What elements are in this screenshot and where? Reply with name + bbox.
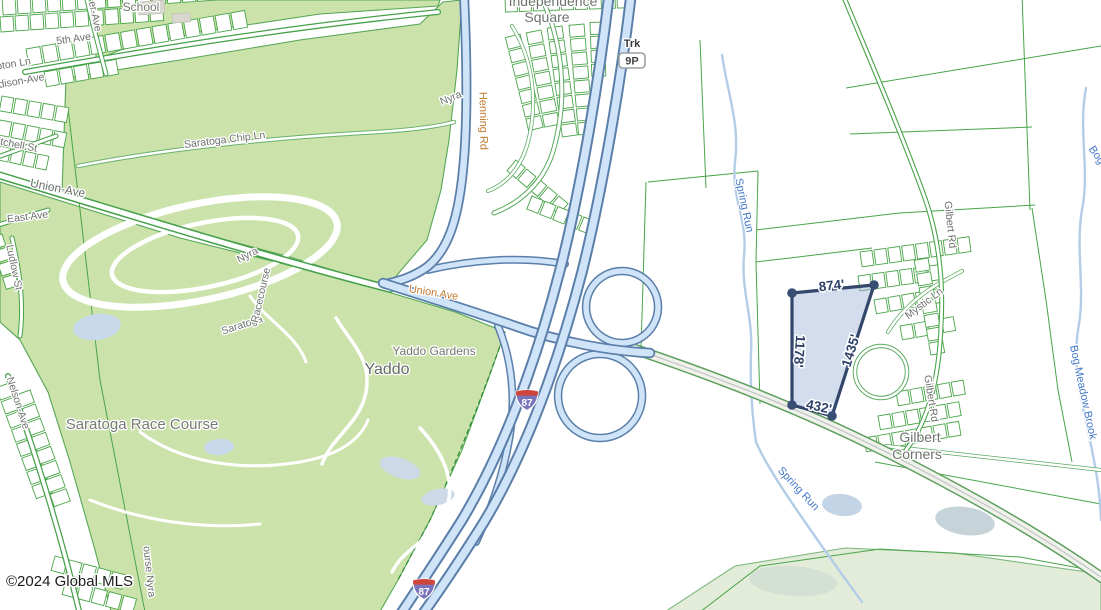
parcel-measurement-top: 874': [818, 277, 845, 295]
street-label-henning-rd: Henning Rd: [476, 92, 489, 150]
interstate-87-number-2: 87: [418, 587, 430, 598]
route-9p-number: 9P: [625, 56, 638, 68]
place-label-gilbert: Gilbert: [899, 429, 940, 445]
place-label-independence: Independence: [509, 0, 598, 9]
place-label-yaddo: Yaddo: [364, 361, 409, 378]
place-label-square: Square: [524, 9, 569, 25]
interstate-87-number: 87: [521, 398, 533, 409]
route-9p-shield: 9P: [619, 53, 645, 68]
map-attribution: ©2024 Global MLS: [6, 573, 133, 590]
place-label-corners: Corners: [892, 446, 942, 462]
parcel-measurement-left: 1178': [791, 335, 808, 368]
place-label-yaddo-gardens: Yaddo Gardens: [392, 344, 475, 358]
place-label-school: School: [123, 0, 160, 14]
mls-map-canvas[interactable]: Trk 9P 87 87 5th Ave pton Ln dison-Ave e…: [0, 0, 1101, 610]
place-label-saratoga-race-course: Saratoga Race Course: [66, 416, 219, 433]
map-svg[interactable]: Trk 9P 87 87 5th Ave pton Ln dison-Ave e…: [0, 0, 1101, 610]
truck-route-label: Trk: [624, 38, 641, 50]
